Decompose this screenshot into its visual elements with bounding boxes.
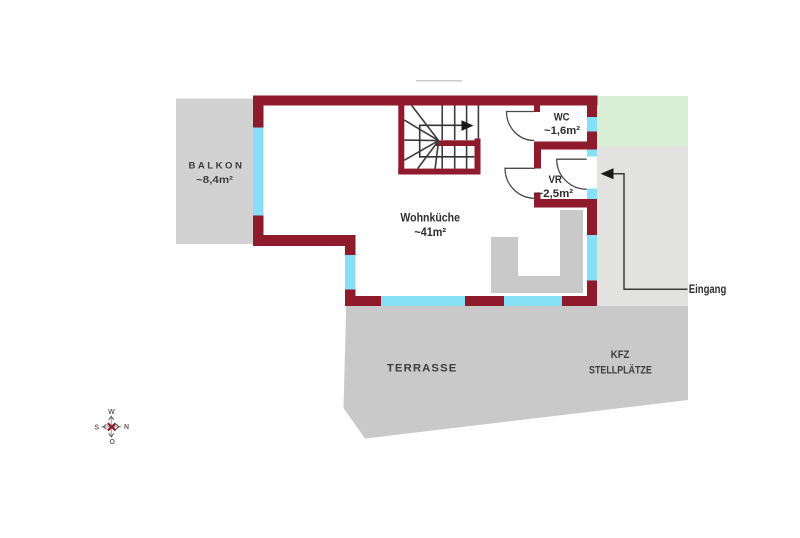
svg-text:S: S (94, 425, 99, 432)
svg-text:~1,6m²: ~1,6m² (544, 125, 580, 137)
svg-text:N: N (124, 424, 129, 431)
svg-text:Wohnküche: Wohnküche (400, 210, 460, 224)
svg-text:KFZ: KFZ (611, 349, 630, 361)
svg-text:Eingang: Eingang (689, 282, 727, 296)
svg-text:~2,5m²: ~2,5m² (536, 188, 573, 200)
svg-text:~41m²: ~41m² (414, 225, 446, 239)
svg-text:VR: VR (548, 174, 562, 186)
svg-text:TERRASSE: TERRASSE (387, 362, 457, 374)
svg-text:~8,4m²: ~8,4m² (196, 175, 233, 186)
svg-text:O: O (109, 439, 115, 446)
svg-text:WC: WC (554, 112, 570, 124)
svg-text:W: W (108, 409, 115, 416)
svg-text:STELLPLÄTZE: STELLPLÄTZE (589, 364, 652, 377)
